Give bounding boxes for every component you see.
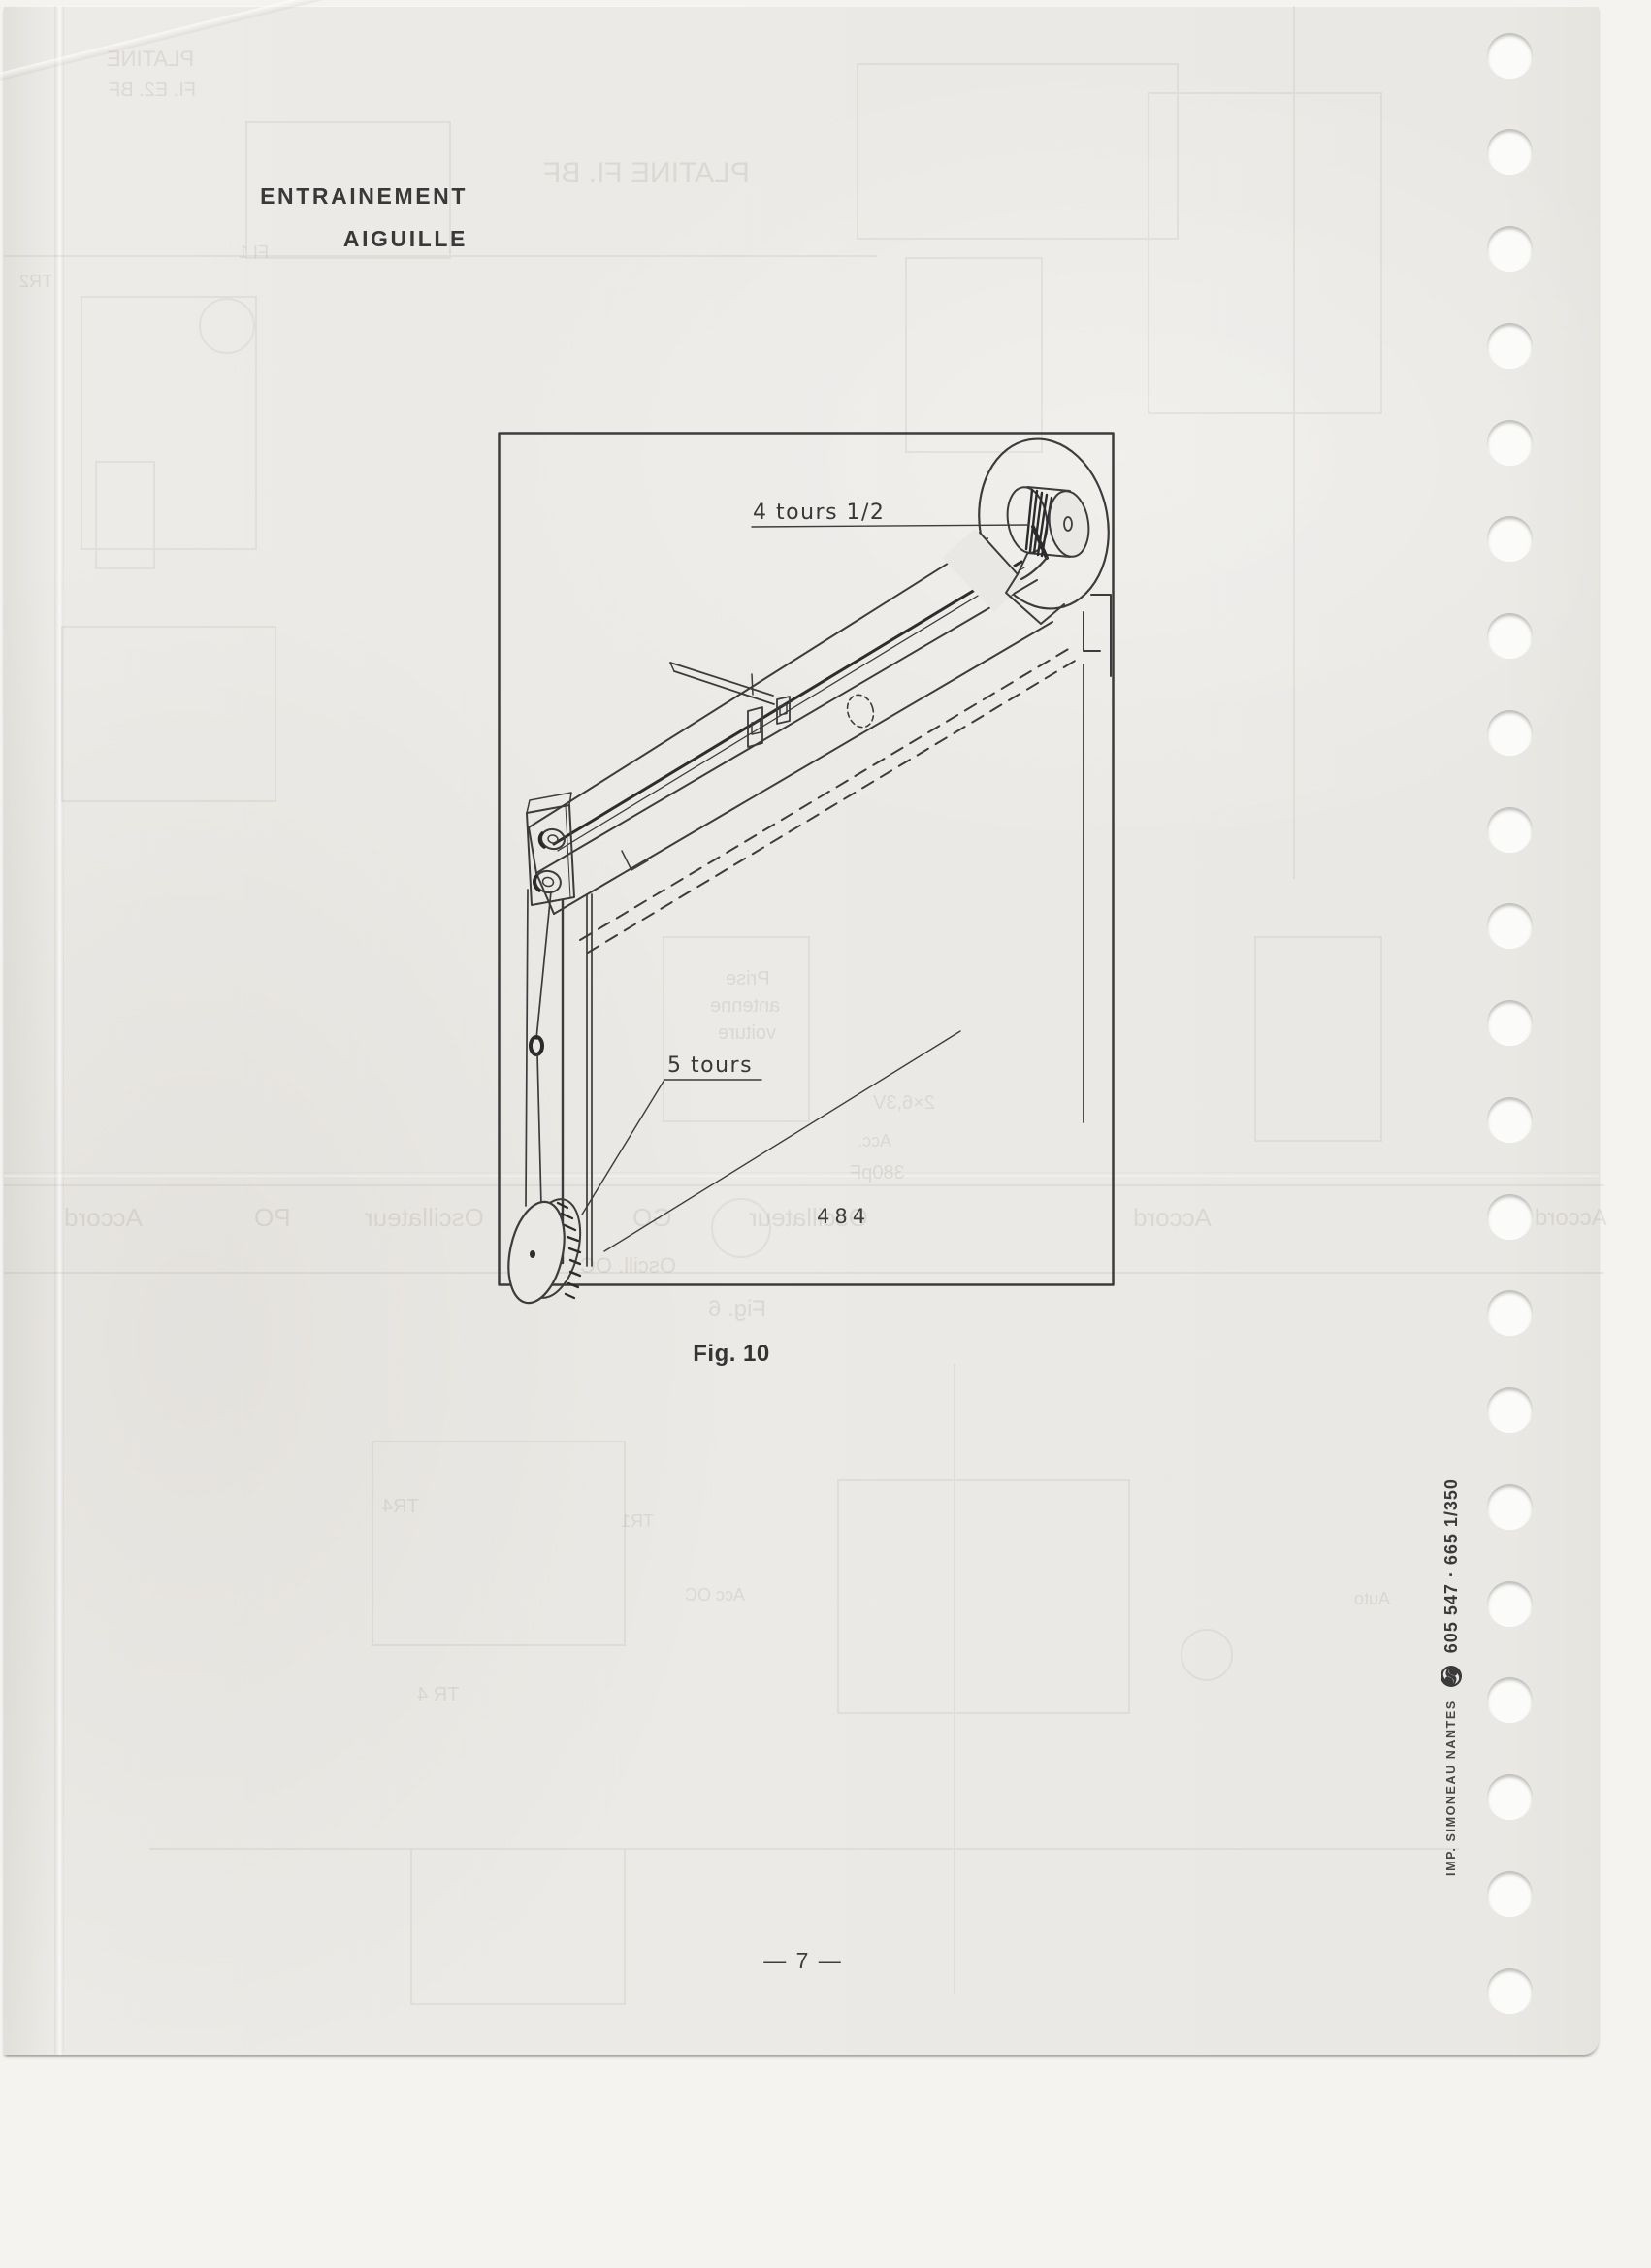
- printer-reference: 605 547 · 665 1/350: [1441, 1478, 1462, 1653]
- ghost-text: Accord: [1133, 1203, 1212, 1233]
- binder-hole: [1487, 1871, 1533, 1917]
- ghost-text: PO: [254, 1203, 291, 1233]
- binder-hole: [1487, 710, 1533, 756]
- binder-hole: [1487, 1774, 1533, 1820]
- binder-hole: [1487, 1387, 1533, 1433]
- figure-caption: Fig. 10: [667, 1341, 795, 1368]
- idler-pulley-bracket: [527, 793, 574, 905]
- ghost-text: TR 4: [417, 1684, 459, 1706]
- ghost-text: FI. E2. BF: [109, 80, 196, 102]
- label-part-number: 484: [817, 1205, 870, 1228]
- ghost-text: PLATINE: [107, 47, 194, 72]
- binder-hole: [1487, 1097, 1533, 1143]
- ghost-text: Accord: [64, 1203, 143, 1233]
- ghost-text: TR2: [19, 272, 52, 292]
- binder-hole: [1487, 323, 1533, 369]
- page-title: ENTRAINEMENT AIGUILLE: [194, 175, 468, 260]
- binder-hole: [1487, 1000, 1533, 1046]
- ghost-text: Oscillateur: [365, 1203, 484, 1233]
- binder-hole: [1487, 129, 1533, 175]
- binder-hole: [1487, 807, 1533, 853]
- binder-hole: [1487, 1484, 1533, 1530]
- label-4-tours-1-2: 4 tours 1/2: [753, 501, 885, 525]
- printer-imprint-block: IMP. SIMONEAU NANTES 605 547 · 665 1/350: [1440, 1478, 1463, 1876]
- binder-hole: [1487, 226, 1533, 272]
- tuning-shaft-drum: [501, 1193, 590, 1308]
- page-title-line1: ENTRAINEMENT: [194, 175, 468, 217]
- page-title-line2: AIGUILLE: [194, 217, 468, 260]
- ghost-text: Acc OC: [685, 1585, 745, 1605]
- cord-winding-4turns: [1026, 490, 1052, 558]
- binder-hole: [1487, 516, 1533, 562]
- ghost-text: Accord: [1535, 1205, 1607, 1232]
- ghost-text: TR1: [621, 1511, 654, 1532]
- scanned-page: PLATINEFI. E2. BFPLATINE FI. BFTR2FI 1Ac…: [0, 0, 1651, 2268]
- ghost-text: Auto: [1354, 1589, 1390, 1609]
- ghost-text: TR4: [382, 1496, 419, 1518]
- binder-hole: [1487, 1581, 1533, 1627]
- binder-hole: [1487, 1968, 1533, 2014]
- page-number: — 7 —: [706, 1948, 900, 1974]
- binder-hole: [1487, 420, 1533, 466]
- binder-hole: [1487, 33, 1533, 79]
- needle-drive-diagram: 4 tours 1/2 5 tours 484: [498, 432, 1115, 1314]
- label-5-tours: 5 tours: [667, 1053, 753, 1078]
- binder-hole: [1487, 1677, 1533, 1723]
- ghost-text: PLATINE FI. BF: [543, 157, 750, 190]
- binder-hole: [1487, 613, 1533, 659]
- binder-hole: [1487, 1290, 1533, 1336]
- simoneau-logo-icon: [1440, 1665, 1463, 1688]
- printer-imprint: IMP. SIMONEAU NANTES: [1444, 1700, 1458, 1876]
- binder-hole: [1487, 1194, 1533, 1240]
- binder-hole: [1487, 903, 1533, 949]
